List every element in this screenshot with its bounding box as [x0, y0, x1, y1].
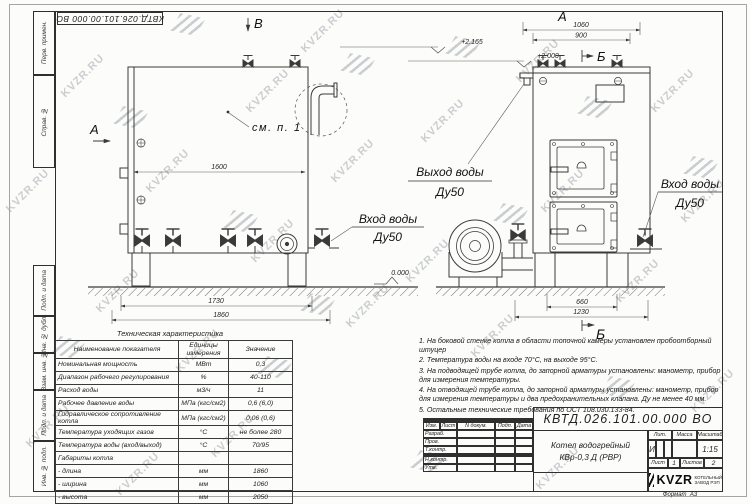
dim-side-1060: 1060: [573, 22, 589, 29]
lit-header: Лит.: [648, 430, 672, 440]
logo-stripes-icon: [649, 473, 654, 487]
spec-row: Диапазон рабочего регулирования%40-110: [56, 372, 293, 385]
format-note: Формат А3: [625, 492, 735, 498]
front-inlet-dn: Ду50: [372, 230, 402, 244]
sheets-value: 2: [704, 458, 723, 468]
sheet-value: 1: [668, 458, 680, 468]
spec-row: Гидравлическое сопротивление котлаМПа (к…: [56, 411, 293, 426]
engineering-drawing-sheet: { "watermark": { "text": "KVZR.RU" }, "d…: [0, 0, 750, 500]
lit-cell-2: [656, 440, 664, 458]
scale-value: 1:15: [697, 440, 723, 458]
spec-row: Расход водым3/ч11: [56, 385, 293, 398]
title-block-doc-number: КВТД.026.101.00.000 ВО: [533, 407, 723, 431]
spec-row: Номинальная мощностьМВт0,3: [56, 359, 293, 372]
spec-header-row: Наименование показателя Единицы измерени…: [56, 341, 293, 359]
side-view-linework: [436, 67, 665, 296]
note-1: 1. На боковой стенке котла в области топ…: [419, 337, 727, 355]
side-inlet-dn: Ду50: [674, 196, 704, 210]
spec-table: Наименование показателя Единицы измерени…: [55, 340, 293, 504]
title-block-empty-cell: [533, 472, 648, 492]
mass-header: Масса: [672, 430, 697, 440]
dim-side-900: 900: [575, 33, 587, 40]
side-inlet-label: Вход воды: [661, 177, 719, 191]
spec-row: Температура уходящих газов°Сне более 280: [56, 426, 293, 439]
elev-2165: +2.165: [461, 39, 483, 46]
elev-2000: +2.000: [537, 53, 559, 60]
lit-value: И: [648, 440, 656, 458]
front-view-valves: [135, 56, 330, 246]
dim-side-660: 660: [576, 299, 588, 306]
side-section-b-top: Б: [597, 49, 606, 64]
front-view-linework: [88, 67, 418, 296]
mass-value: [672, 440, 697, 458]
sheet-label: Лист: [648, 458, 668, 468]
side-label-a: А: [557, 9, 567, 24]
spec-table-title: Техническая характеристика: [70, 329, 270, 338]
company-logo: KVZR КОТЕЛЬНЫЙ ЗАВОД РЭП: [648, 468, 723, 492]
title-block-signature-grid: Изм.ЛистN докум.Подп.Дата Разраб. Пров. …: [423, 418, 533, 472]
scale-header: Масштаб: [697, 430, 723, 440]
spec-row: - высотамм2050: [56, 491, 293, 504]
lit-cell-3: [664, 440, 672, 458]
note-2: 2. Температура воды на входе 70°С, на вы…: [419, 356, 727, 365]
spec-row: Рабочее давление водыМПа (кгс/см2)0,6 (6…: [56, 398, 293, 411]
front-inlet-label: Вход воды: [359, 212, 417, 226]
sampling-fitting-point: [227, 111, 230, 114]
note-4: 4. На отводящей трубе котла, до запорной…: [419, 386, 727, 404]
spec-row: - длинамм1860: [56, 465, 293, 478]
section-marker-a: А: [89, 122, 99, 137]
title-block-product-name: Котел водогрейный КВр-0,3 Д (РВР): [533, 430, 648, 473]
spec-row: Температура воды (вход/выход)°С70/95: [56, 439, 293, 452]
side-view-valves: [511, 56, 652, 246]
front-view-dimensions: [112, 47, 531, 324]
dim-front-1860: 1860: [213, 312, 229, 319]
section-marker-v: В: [254, 16, 263, 31]
side-outlet-label: Выход воды: [416, 165, 484, 179]
sheets-label: Листов: [680, 458, 704, 468]
spec-row: Габариты котла: [56, 452, 293, 465]
logo-subtitle: КОТЕЛЬНЫЙ ЗАВОД РЭП: [694, 475, 722, 486]
technical-notes: 1. На боковой стенке котла в области топ…: [419, 337, 727, 416]
elev-0000: 0.000: [391, 270, 409, 277]
logo-word: KVZR: [656, 473, 692, 487]
dim-side-1230: 1230: [573, 309, 589, 316]
note-3: 3. На подводящей трубе котла, до запорно…: [419, 367, 727, 385]
dim-front-1600: 1600: [211, 164, 227, 171]
side-outlet-dn: Ду50: [434, 185, 464, 199]
spec-row: - ширинамм1060: [56, 478, 293, 491]
dim-front-1730: 1730: [208, 298, 224, 305]
detail-callout: см. п. 1: [252, 122, 301, 134]
